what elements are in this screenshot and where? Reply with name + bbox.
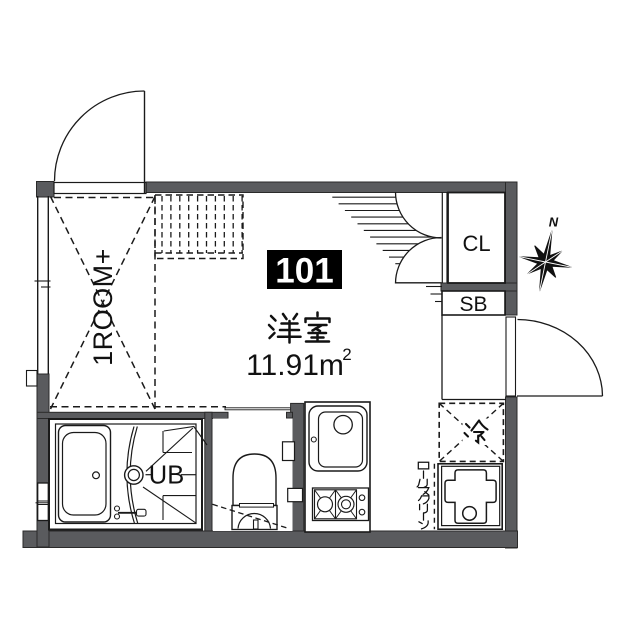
svg-text:101: 101: [275, 252, 333, 291]
svg-text:1ROOM+: 1ROOM+: [88, 248, 118, 366]
svg-text:SB: SB: [459, 293, 487, 316]
svg-text:N: N: [549, 215, 559, 230]
svg-text:CL: CL: [462, 231, 490, 256]
svg-text:2: 2: [342, 345, 351, 364]
svg-text:UB: UB: [149, 462, 184, 490]
svg-text:11.91m: 11.91m: [246, 349, 344, 382]
